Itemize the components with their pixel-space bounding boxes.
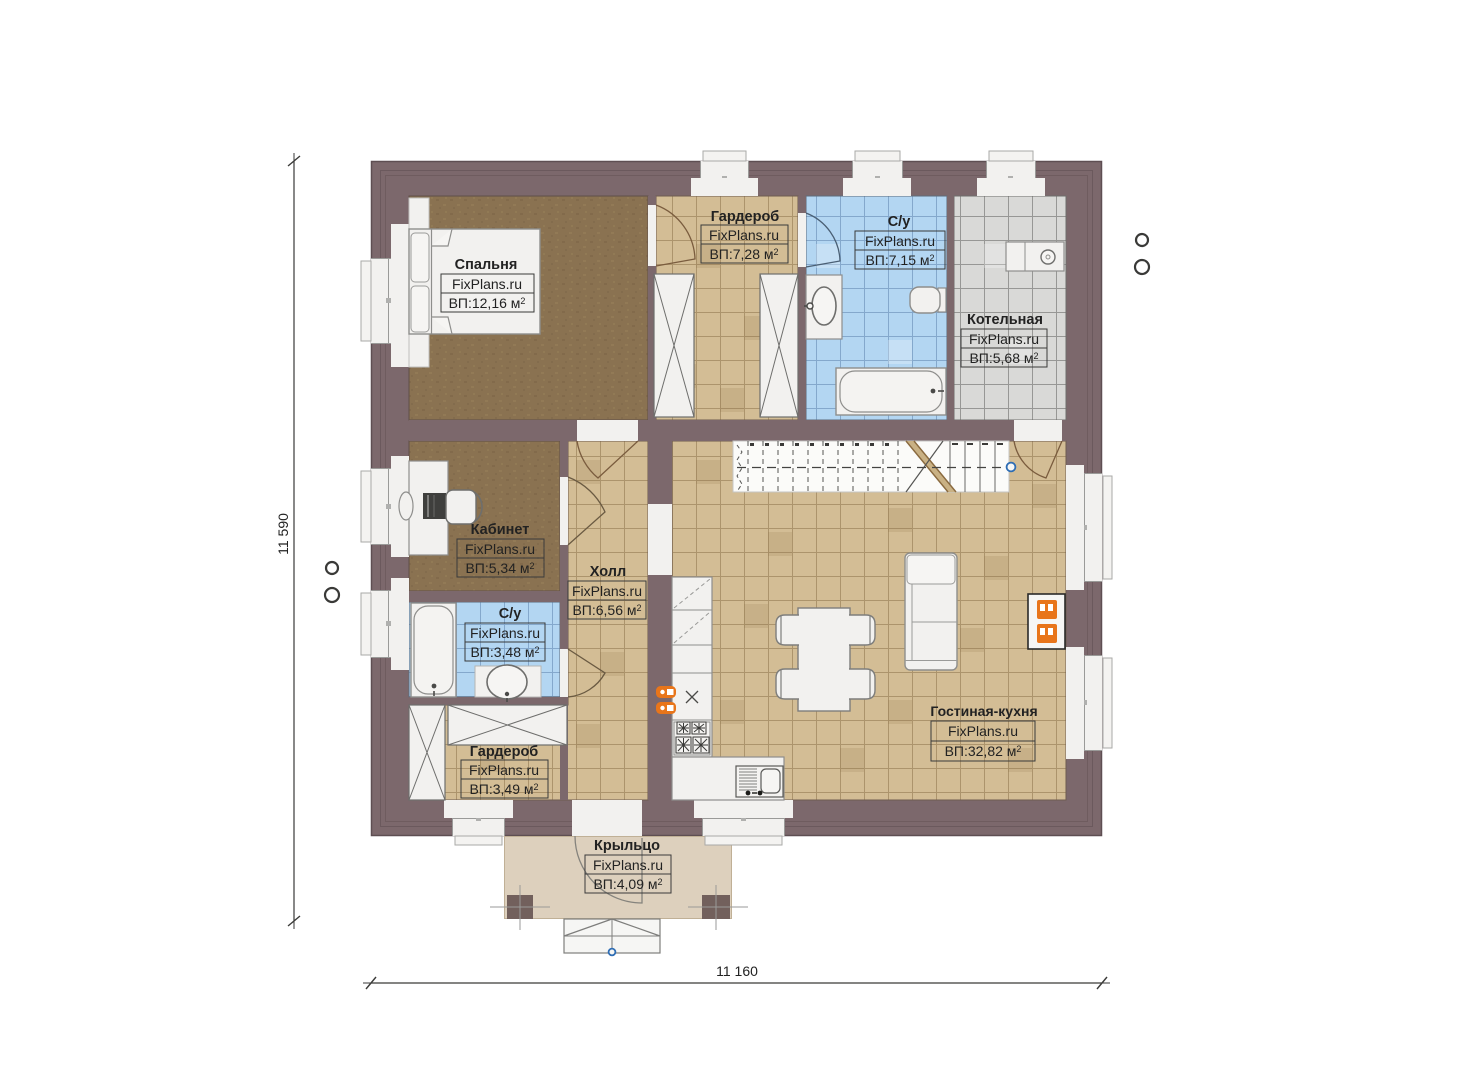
svg-text:Гардероб: Гардероб bbox=[711, 209, 780, 225]
svg-text:Крыльцо: Крыльцо bbox=[594, 838, 660, 854]
svg-text:ВП:7,28 м2: ВП:7,28 м2 bbox=[709, 246, 778, 262]
svg-text:ВП:3,48 м2: ВП:3,48 м2 bbox=[470, 644, 539, 660]
svg-text:ВП:5,68 м2: ВП:5,68 м2 bbox=[969, 350, 1038, 366]
svg-text:С/у: С/у bbox=[888, 214, 911, 230]
svg-text:ВП:3,49 м2: ВП:3,49 м2 bbox=[469, 781, 538, 797]
svg-text:Гостиная-кухня: Гостиная-кухня bbox=[930, 703, 1037, 719]
svg-text:11 160: 11 160 bbox=[716, 963, 758, 979]
svg-text:ВП:6,56 м2: ВП:6,56 м2 bbox=[572, 602, 641, 618]
svg-text:FixPlans.ru: FixPlans.ru bbox=[593, 857, 663, 873]
svg-text:Спальня: Спальня bbox=[455, 257, 518, 273]
svg-text:FixPlans.ru: FixPlans.ru bbox=[709, 227, 779, 243]
svg-text:Гардероб: Гардероб bbox=[470, 744, 539, 760]
svg-text:Котельная: Котельная bbox=[967, 312, 1043, 328]
svg-text:FixPlans.ru: FixPlans.ru bbox=[969, 331, 1039, 347]
svg-text:С/у: С/у bbox=[499, 606, 522, 622]
svg-text:Кабинет: Кабинет bbox=[471, 522, 530, 538]
svg-text:11 590: 11 590 bbox=[275, 513, 291, 555]
svg-text:FixPlans.ru: FixPlans.ru bbox=[465, 541, 535, 557]
svg-text:FixPlans.ru: FixPlans.ru bbox=[865, 233, 935, 249]
svg-text:ВП:4,09 м2: ВП:4,09 м2 bbox=[593, 876, 662, 892]
svg-text:ВП:12,16 м2: ВП:12,16 м2 bbox=[449, 295, 526, 311]
svg-text:FixPlans.ru: FixPlans.ru bbox=[470, 625, 540, 641]
svg-text:ВП:32,82 м2: ВП:32,82 м2 bbox=[945, 743, 1022, 759]
svg-text:FixPlans.ru: FixPlans.ru bbox=[948, 723, 1018, 739]
svg-text:FixPlans.ru: FixPlans.ru bbox=[452, 276, 522, 292]
svg-text:ВП:5,34 м2: ВП:5,34 м2 bbox=[465, 560, 534, 576]
svg-text:FixPlans.ru: FixPlans.ru bbox=[572, 583, 642, 599]
svg-text:Холл: Холл bbox=[590, 564, 626, 580]
svg-text:ВП:7,15 м2: ВП:7,15 м2 bbox=[865, 252, 934, 268]
svg-text:FixPlans.ru: FixPlans.ru bbox=[469, 762, 539, 778]
